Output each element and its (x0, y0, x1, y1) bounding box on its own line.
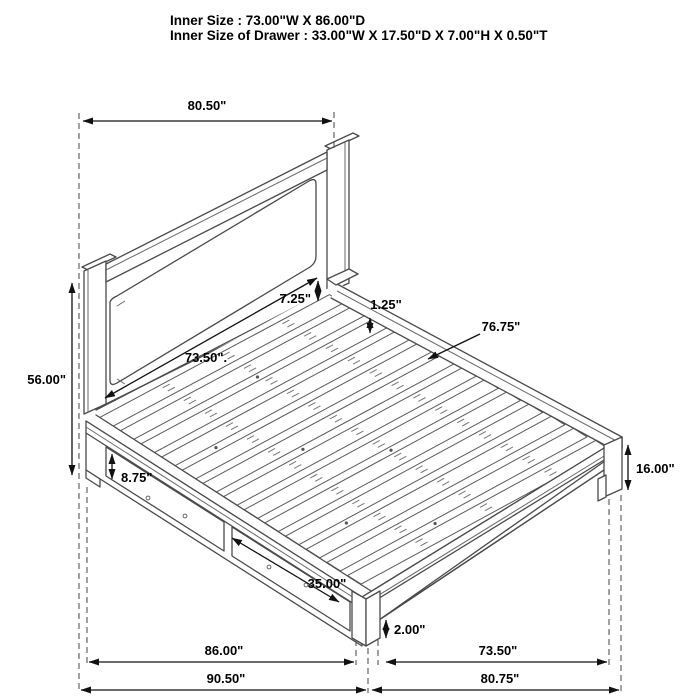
dim-headboard-height: 56.00" (27, 283, 72, 475)
slat-dot (433, 522, 436, 525)
dim-label-inner-rail-length: 76.75" (482, 319, 521, 334)
bed-dimension-diagram: 80.50" 56.00" 73.50". 7.25" 1.25" 76.75"… (0, 0, 700, 700)
slat-dot (301, 448, 304, 451)
east-corner-post (604, 437, 622, 497)
dim-bottom-clearance: 2.00" (386, 620, 425, 638)
title-line-1: Inner Size : 73.00"W X 86.00"D (170, 13, 365, 28)
east-foot (598, 475, 606, 501)
title-block: Inner Size : 73.00"W X 86.00"D Inner Siz… (170, 13, 548, 43)
slat-dot (256, 375, 259, 378)
dim-label-overall-foot-width: 80.75" (481, 671, 520, 686)
headboard-left-post (84, 261, 106, 414)
dim-label-foot-inner-width: 73.50" (479, 643, 518, 658)
dim-label-panel-width: 73.50". (185, 350, 227, 365)
dim-overall-foot-width: 80.75" (372, 671, 619, 690)
dim-foot-inner-width: 73.50" (386, 643, 607, 662)
dim-label-slat-thickness: 1.25" (370, 297, 401, 312)
dim-label-drawer-face-height: 8.75" (121, 470, 152, 485)
dim-label-headboard-width: 80.50" (188, 98, 227, 113)
foot-corner-post-left (352, 591, 366, 646)
title-line-2: Inner Size of Drawer : 33.00"W X 17.50"D… (170, 28, 548, 43)
foot-corner-post-right (366, 591, 380, 646)
dim-label-drawer-front-width: 35.00" (308, 576, 347, 591)
dim-label-bottom-clearance: 2.00" (394, 622, 425, 637)
dim-headboard-width: 80.50" (83, 98, 332, 121)
dim-label-footboard-post-height: 16.00" (636, 461, 675, 476)
dim-base-side-length: 86.00" (89, 643, 354, 662)
diagram-canvas: 80.50" 56.00" 73.50". 7.25" 1.25" 76.75"… (0, 0, 700, 700)
dim-inner-rail-length: 76.75" (428, 319, 520, 359)
dim-label-headboard-height: 56.00" (27, 372, 66, 387)
dim-label-overall-side-length: 90.50" (207, 671, 246, 686)
dim-footboard-post-height: 16.00" (628, 445, 675, 490)
dim-overall-side-length: 90.50" (81, 671, 366, 690)
slat-dot (345, 521, 348, 524)
dim-label-panel-to-rail: 7.25" (280, 291, 311, 306)
slat-dot (389, 449, 392, 452)
dim-label-base-side-length: 86.00" (205, 643, 244, 658)
slat-dot (214, 446, 217, 449)
